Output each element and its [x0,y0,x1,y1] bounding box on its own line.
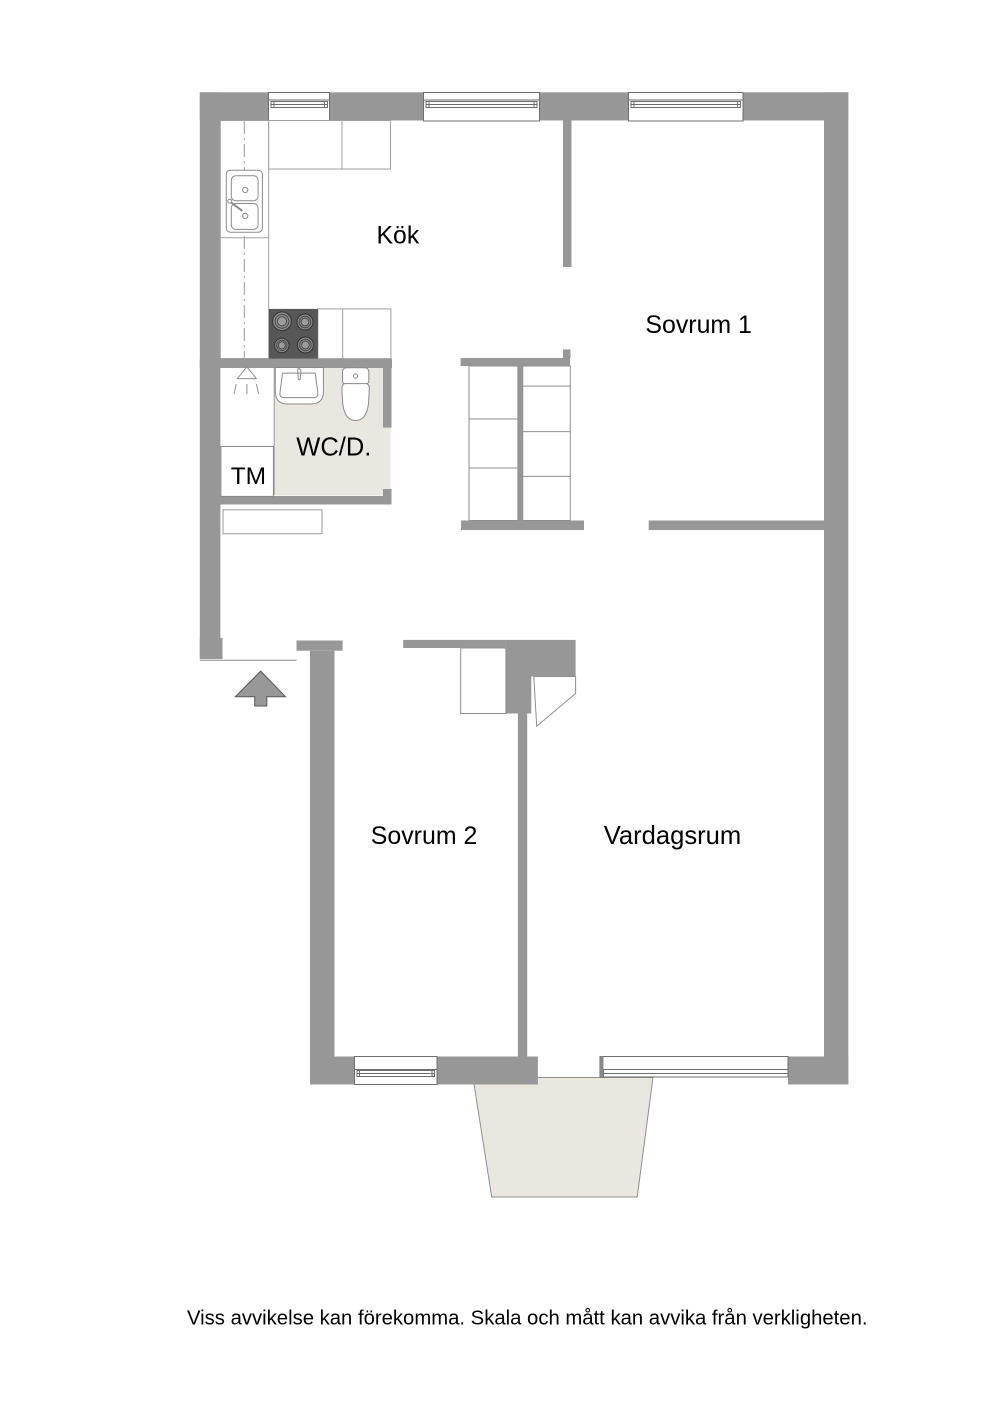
svg-text:Kök: Kök [377,223,420,250]
svg-text:TM: TM [231,463,266,490]
svg-text:Sovrum 2: Sovrum 2 [371,822,478,850]
svg-text:WC/D.: WC/D. [296,434,371,462]
svg-text:Sovrum 1: Sovrum 1 [645,311,752,339]
svg-text:Vardagsrum: Vardagsrum [604,822,742,850]
svg-text:Viss avvikelse kan förekomma.: Viss avvikelse kan förekomma. Skala och … [187,1308,867,1330]
